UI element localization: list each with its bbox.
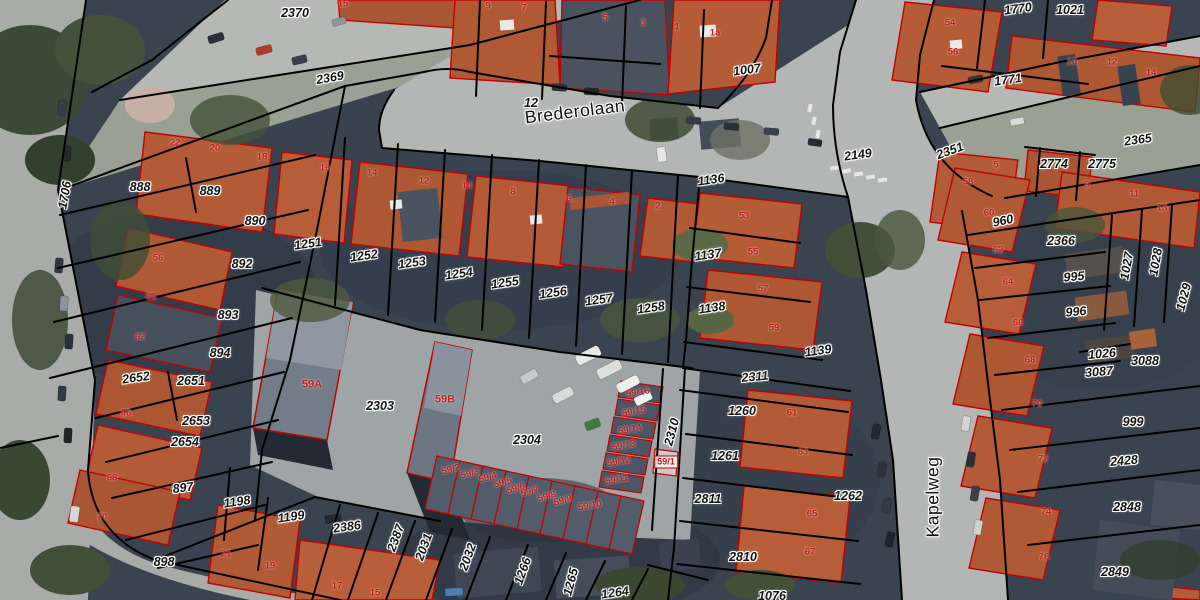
house-number-label: 59A: [302, 380, 322, 391]
street-name-label: Kapelweg: [924, 457, 942, 538]
parcel-number-label: 889: [200, 185, 221, 198]
house-number-label: 59: [769, 323, 780, 333]
house-number-label: 11: [1129, 189, 1139, 199]
parcel-number-label: 2310: [662, 417, 681, 447]
parcel-number-label: 2366: [1047, 235, 1075, 248]
house-number-label: 1: [674, 22, 679, 32]
parcel-number-label: 1027: [1118, 251, 1135, 281]
house-number-label: 9: [485, 1, 490, 11]
parcel-number-label: 2849: [1101, 566, 1129, 579]
parcel-number-label: 2032: [457, 542, 478, 572]
house-number-label: 59/10: [577, 499, 602, 512]
street-name-label: Brederolaan: [524, 97, 626, 127]
house-number-label: 12: [419, 176, 430, 186]
parcel-number-label: 892: [232, 258, 253, 271]
house-number-label: 14: [1146, 68, 1157, 78]
house-number-label: 67: [805, 547, 816, 557]
parcel-number-label: 2386: [332, 519, 361, 535]
parcel-number-label: 2810: [729, 551, 757, 564]
house-number-label: 56: [948, 47, 959, 57]
house-number-label: 2: [655, 201, 660, 211]
parcel-number-label: 1021: [1056, 4, 1084, 17]
parcel-number-label: 1255: [490, 275, 519, 291]
house-number-label: 66: [121, 408, 132, 418]
house-number-label: 57: [758, 284, 769, 294]
parcel-number-label: 1252: [349, 248, 378, 264]
parcel-number-label: 1265: [561, 567, 580, 597]
parcel-number-label: 996: [1065, 305, 1087, 319]
house-number-label: 59/13: [611, 439, 636, 452]
house-number-label: 10: [1067, 57, 1078, 67]
parcel-number-label: 2652: [121, 370, 150, 386]
house-number-label: 8: [510, 187, 515, 197]
parcel-number-label: 1261: [711, 450, 739, 463]
parcel-number-label: 1137: [694, 247, 722, 263]
house-number-label: 59/11: [605, 473, 630, 486]
house-number-label: 18: [257, 152, 268, 162]
house-number-label: 12: [1107, 57, 1118, 67]
parcel-number-label: 2428: [1110, 454, 1139, 469]
house-number-label: 74: [1041, 507, 1052, 517]
parcel-number-label: 2848: [1113, 501, 1141, 514]
house-number-label: 76: [1039, 552, 1050, 562]
parcel-number-label: 1771: [993, 72, 1022, 88]
map-labels-layer: 2370236912100717701021177121492351236527…: [0, 0, 1200, 600]
house-number-label: 3: [640, 18, 645, 28]
house-number-label: 20: [210, 143, 221, 153]
house-number-label: 10: [462, 181, 473, 191]
parcel-number-label: 1706: [56, 180, 73, 210]
house-number-label: 5: [993, 160, 998, 170]
house-number-label: 56: [153, 253, 164, 263]
house-number-label: 22: [170, 138, 181, 148]
house-number-label: 15: [370, 588, 381, 598]
parcel-number-label: 1029: [1174, 282, 1193, 312]
parcel-number-label: 2811: [695, 493, 722, 506]
parcel-number-label: 2654: [171, 436, 199, 449]
house-number-label: 58: [963, 177, 974, 187]
parcel-number-label: 1076: [758, 590, 786, 600]
house-number-label: 64: [1003, 277, 1014, 287]
parcel-number-label: 3087: [1085, 365, 1114, 380]
house-number-label: 6: [566, 194, 571, 204]
parcel-number-label: 1138: [698, 300, 726, 316]
house-number-label: 62: [993, 245, 1004, 255]
house-number-label: 61: [787, 408, 798, 418]
parcel-number-label: 2311: [741, 370, 769, 385]
parcel-number-label: 1199: [277, 509, 305, 525]
house-number-label: 68: [107, 473, 118, 483]
parcel-number-label: 1007: [732, 62, 761, 78]
house-number-label: 55: [748, 247, 759, 257]
house-number-label: 59/15: [621, 405, 646, 418]
parcel-number-label: 893: [218, 309, 239, 322]
parcel-number-label: 999: [1123, 416, 1144, 429]
house-number-label: 14: [367, 168, 378, 178]
parcel-number-label: 1254: [444, 266, 473, 282]
house-number-label: 68: [1025, 355, 1036, 365]
parcel-number-label: 1770: [1003, 1, 1032, 17]
house-number-label: 62: [135, 332, 146, 342]
parcel-number-label: 1266: [512, 556, 533, 586]
parcel-number-label: 2369: [315, 69, 345, 86]
house-number-label: 4: [609, 197, 614, 207]
house-number-label: 59/9: [553, 494, 573, 508]
house-number-label: 70: [1032, 399, 1043, 409]
house-number-label: 54: [945, 18, 956, 28]
house-number-label: 59B: [435, 395, 455, 406]
parcel-number-label: 1136: [697, 172, 725, 188]
parcel-number-label: 2774: [1040, 158, 1068, 171]
parcel-number-label: 2387: [385, 523, 406, 553]
house-number-label: 1a: [710, 28, 721, 38]
parcel-number-label: 1251: [293, 236, 322, 252]
house-number-label: 21: [221, 549, 232, 559]
parcel-number-label: 3088: [1131, 355, 1159, 368]
house-number-label: 59/12: [606, 455, 631, 468]
parcel-number-label: 888: [130, 181, 151, 194]
parcel-number-label: 1256: [538, 285, 567, 301]
parcel-number-label: 2304: [513, 434, 541, 447]
parcel-number-label: 894: [210, 347, 231, 360]
parcel-number-label: 1139: [804, 343, 832, 359]
house-number-label: 9: [1084, 180, 1089, 190]
parcel-number-label: 1253: [397, 255, 426, 271]
parcel-number-label: 890: [245, 215, 266, 228]
house-number-label: 66: [1013, 318, 1024, 328]
house-number-label: 63: [798, 447, 809, 457]
parcel-number-label: 1026: [1088, 347, 1117, 362]
aerial-map-view[interactable]: 2370236912100717701021177121492351236527…: [0, 0, 1200, 600]
house-number-label: 60: [984, 208, 995, 218]
house-number-label: 70: [97, 512, 108, 522]
house-number-label: 59/16: [625, 386, 650, 399]
house-number-label: 59/1: [654, 456, 678, 469]
house-number-label: 72: [1038, 454, 1049, 464]
parcel-number-label: 1260: [728, 405, 756, 418]
parcel-number-label: 2775: [1088, 158, 1116, 171]
parcel-number-label: 1257: [584, 292, 613, 308]
parcel-number-label: 1262: [834, 490, 862, 503]
parcel-number-label: 2351: [935, 140, 965, 161]
parcel-number-label: 2303: [366, 400, 394, 413]
house-number-label: 16: [320, 163, 331, 173]
house-number-label: 5: [602, 13, 607, 23]
house-number-label: 60: [146, 292, 157, 302]
parcel-number-label: 1258: [636, 300, 665, 316]
house-number-label: 59/2: [441, 463, 461, 477]
parcel-number-label: 2651: [177, 375, 205, 388]
parcel-number-label: 2365: [1123, 132, 1152, 148]
parcel-number-label: 2370: [281, 7, 309, 20]
parcel-number-label: 2031: [413, 532, 434, 562]
parcel-number-label: 1028: [1147, 247, 1164, 277]
parcel-number-label: 897: [172, 480, 194, 495]
parcel-number-label: 995: [1063, 270, 1085, 284]
house-number-label: 13: [1157, 203, 1168, 213]
parcel-number-label: 2653: [182, 415, 210, 428]
parcel-number-label: 898: [154, 556, 175, 569]
house-number-label: 15: [338, 0, 349, 9]
parcel-number-label: 1198: [223, 494, 251, 510]
parcel-number-label: 2149: [843, 147, 872, 163]
house-number-label: 65: [807, 509, 818, 519]
house-number-label: 19: [265, 561, 276, 571]
house-number-label: 17: [332, 581, 343, 591]
house-number-label: 53: [739, 211, 750, 221]
house-number-label: 7: [521, 3, 526, 13]
parcel-number-label: 960: [991, 213, 1014, 230]
house-number-label: 59/14: [617, 423, 642, 436]
parcel-number-label: 1264: [600, 585, 629, 600]
